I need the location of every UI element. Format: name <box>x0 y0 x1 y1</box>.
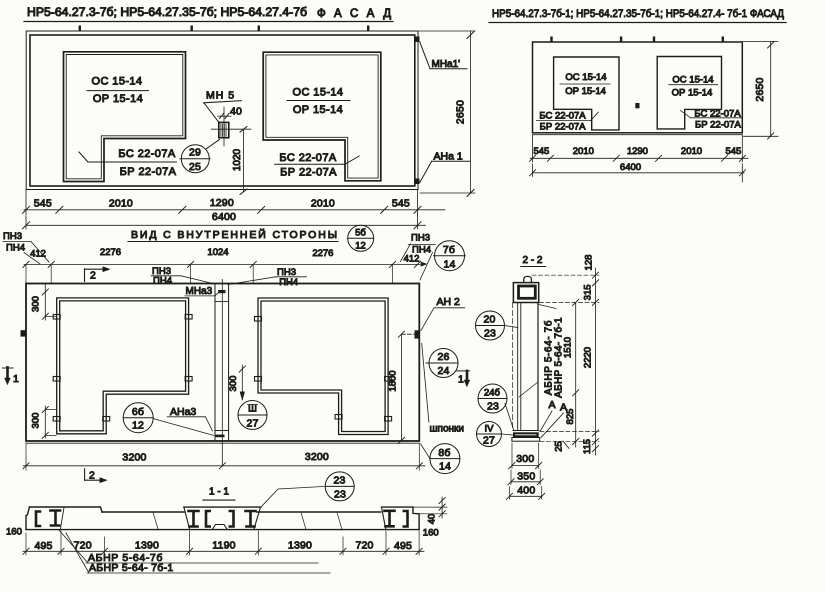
svg-text:АНа3: АНа3 <box>170 406 196 418</box>
svg-text:IV: IV <box>485 424 495 435</box>
svg-text:ОС 15-14: ОС 15-14 <box>565 72 606 83</box>
svg-text:АБНР 5-64- 7б-1: АБНР 5-64- 7б-1 <box>89 562 174 574</box>
svg-text:ПН4: ПН4 <box>6 243 25 254</box>
svg-text:495: 495 <box>34 540 52 552</box>
svg-text:720: 720 <box>355 540 373 552</box>
svg-text:БР 22-07А: БР 22-07А <box>695 119 742 130</box>
svg-text:МН 5: МН 5 <box>206 90 235 102</box>
svg-text:1190: 1190 <box>212 540 235 552</box>
svg-text:шпонки: шпонки <box>430 424 464 435</box>
svg-text:ПН3: ПН3 <box>3 231 22 242</box>
svg-text:АН 2: АН 2 <box>437 296 461 308</box>
svg-text:315: 315 <box>583 284 594 300</box>
svg-text:24: 24 <box>437 365 449 377</box>
svg-text:6400: 6400 <box>212 211 236 223</box>
svg-text:НР5-64.27.3-7б; НР5-64.27.35-7: НР5-64.27.3-7б; НР5-64.27.35-7б; НР5-64.… <box>27 7 307 19</box>
svg-text:23: 23 <box>484 328 496 340</box>
svg-text:7б: 7б <box>443 244 455 256</box>
svg-text:1390: 1390 <box>288 540 312 552</box>
svg-text:23: 23 <box>487 401 499 413</box>
svg-text:350: 350 <box>517 471 535 483</box>
svg-text:2 - 2: 2 - 2 <box>522 255 542 266</box>
svg-text:1 - 1: 1 - 1 <box>209 487 229 498</box>
svg-text:2010: 2010 <box>109 198 133 210</box>
svg-text:160: 160 <box>6 527 22 538</box>
svg-text:5б: 5б <box>355 228 366 239</box>
svg-text:НР5-64.27.3-7б-1; НР5-64.27.35: НР5-64.27.3-7б-1; НР5-64.27.35-7б-1; НР5… <box>492 8 784 20</box>
svg-text:14: 14 <box>443 259 455 271</box>
svg-text:40: 40 <box>427 514 438 525</box>
svg-text:ПН4: ПН4 <box>279 277 298 288</box>
svg-text:1800: 1800 <box>387 370 398 391</box>
svg-text:300: 300 <box>516 453 534 465</box>
svg-text:1510: 1510 <box>563 337 574 358</box>
svg-text:25: 25 <box>553 441 564 452</box>
svg-text:545: 545 <box>34 198 52 210</box>
svg-text:400: 400 <box>517 485 535 497</box>
svg-text:20: 20 <box>483 314 495 326</box>
svg-text:А: А <box>549 399 556 411</box>
svg-text:2010: 2010 <box>681 146 702 157</box>
svg-text:6б: 6б <box>132 406 144 418</box>
svg-text:2010: 2010 <box>573 146 594 157</box>
svg-text:27: 27 <box>483 435 495 447</box>
svg-text:1: 1 <box>13 373 19 385</box>
svg-text:ПН4: ПН4 <box>412 245 431 256</box>
svg-text:БР 22-07А: БР 22-07А <box>120 166 177 178</box>
svg-text:300: 300 <box>228 376 239 392</box>
svg-text:ОС 15-14: ОС 15-14 <box>293 87 344 99</box>
svg-text:ФАСАД: ФАСАД <box>317 8 391 20</box>
svg-text:160: 160 <box>423 528 439 539</box>
svg-text:12: 12 <box>132 420 144 432</box>
svg-text:23: 23 <box>333 475 345 487</box>
svg-text:БС 22-07А: БС 22-07А <box>118 148 175 160</box>
svg-text:2276: 2276 <box>312 248 333 259</box>
svg-text:27: 27 <box>246 418 258 430</box>
svg-text:2650: 2650 <box>754 77 766 101</box>
svg-text:ПН4: ПН4 <box>153 276 172 287</box>
svg-text:2220: 2220 <box>583 347 594 368</box>
svg-text:495: 495 <box>394 540 412 552</box>
svg-text:3200: 3200 <box>122 452 146 464</box>
svg-text:МНа3: МНа3 <box>186 286 213 297</box>
svg-text:1: 1 <box>458 374 464 386</box>
svg-text:29: 29 <box>189 147 201 159</box>
svg-text:2: 2 <box>90 270 96 282</box>
svg-text:ОС 15-14: ОС 15-14 <box>672 75 713 86</box>
svg-text:2276: 2276 <box>100 247 121 258</box>
svg-text:8б: 8б <box>438 447 450 459</box>
svg-text:БР 22-07А: БР 22-07А <box>280 167 337 179</box>
svg-text:40: 40 <box>230 106 242 118</box>
svg-text:ПН3: ПН3 <box>411 233 430 244</box>
svg-text:1290: 1290 <box>627 146 648 157</box>
svg-text:1390: 1390 <box>135 540 159 552</box>
svg-text:300: 300 <box>31 296 42 312</box>
svg-text:1020: 1020 <box>232 148 243 171</box>
svg-text:ОР 15-14: ОР 15-14 <box>93 93 143 105</box>
svg-text:2650: 2650 <box>455 100 467 124</box>
svg-text:26: 26 <box>437 351 449 363</box>
svg-text:2: 2 <box>89 470 95 482</box>
svg-text:23: 23 <box>334 489 346 501</box>
svg-text:412: 412 <box>30 249 46 260</box>
svg-text:2010: 2010 <box>311 198 335 210</box>
svg-text:300: 300 <box>31 413 42 429</box>
svg-text:ВИД С ВНУТРЕННЕЙ СТОРОНЫ: ВИД С ВНУТРЕННЕЙ СТОРОНЫ <box>131 228 337 241</box>
svg-text:БС 22-07А: БС 22-07А <box>539 111 586 122</box>
svg-text:ОР 15-14: ОР 15-14 <box>565 86 606 97</box>
svg-text:545: 545 <box>392 198 410 210</box>
svg-text:ОР 15-14: ОР 15-14 <box>293 104 343 116</box>
svg-text:6400: 6400 <box>620 162 641 173</box>
svg-text:Ш: Ш <box>248 404 257 415</box>
svg-text:128: 128 <box>584 255 595 271</box>
svg-text:1024: 1024 <box>207 247 228 258</box>
svg-text:25: 25 <box>189 161 201 173</box>
svg-text:3200: 3200 <box>305 451 329 463</box>
svg-text:1290: 1290 <box>210 197 234 209</box>
svg-text:ОС 15-14: ОС 15-14 <box>92 76 143 88</box>
svg-text:14: 14 <box>439 461 451 473</box>
svg-text:12: 12 <box>355 241 366 252</box>
svg-text:24б: 24б <box>484 388 501 399</box>
svg-text:А: А <box>560 402 567 414</box>
svg-text:БР 22-07А: БР 22-07А <box>540 122 587 133</box>
svg-text:БС 22-07А: БС 22-07А <box>279 152 336 164</box>
svg-text:ОР 15-14: ОР 15-14 <box>672 87 713 98</box>
